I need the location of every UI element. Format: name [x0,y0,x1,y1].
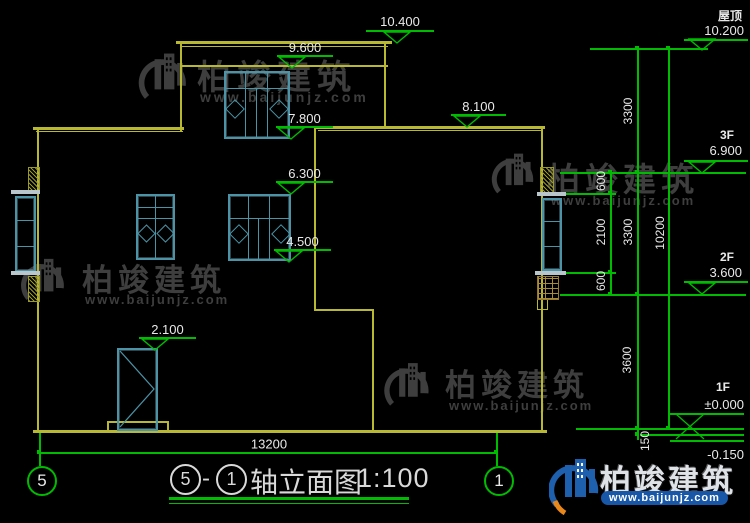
casement-symbol [137,224,155,242]
title-underline-thin [169,503,409,504]
dim-tick [608,170,612,174]
grid-bubble-left: 5 [27,466,57,496]
elevation-drawing-canvas: 柏竣建筑 www.baijunjz.com 柏竣建筑 www.baijunjz.… [0,0,750,523]
window-center-divider [256,89,257,137]
watermark-logo-icon [488,147,540,205]
elevation-label: 4.500 [274,234,331,249]
dim-tick [608,292,612,296]
title-axis-number: 1 [226,469,236,490]
dim-tick [635,426,639,430]
title-axis-circle-to: 1 [216,464,247,495]
dim-line-total-width [40,452,497,454]
window-mullion [267,73,268,137]
floor-name: 屋顶 [684,7,742,24]
watermark-logo-icon [138,46,190,112]
penthouse-wall-left [180,43,182,131]
elevation-label: 7.800 [276,111,333,126]
bay-window-bracket [540,167,554,194]
entry-door [117,348,158,431]
dim-text-total-height: 10200 [653,216,667,249]
watermark-site-text: www.baijunjz.com [551,193,695,208]
floor-name: 2F [684,250,734,264]
window-mullion [248,196,249,259]
window-mullion [155,196,156,258]
roof-coping-right-underline [318,130,543,131]
window-divider [544,246,560,247]
dim-line-middle [637,48,639,440]
elevation-label: 10.400 [366,14,434,29]
elevation-triangle-icon [275,250,303,263]
dim-tick [635,46,639,50]
elevation-label: 2.100 [139,322,196,337]
title-dash: - [202,465,210,493]
watermark-logo-icon [380,356,436,418]
casement-symbol [156,224,174,242]
title-axis-number: 5 [180,469,190,490]
grid-axis-number: 1 [494,471,503,491]
dim-tick [37,450,41,454]
drawing-title: 轴立面图 [250,461,362,501]
dim-text: 150 [638,431,652,451]
bay-window-right [542,198,562,271]
window-transom [230,218,289,219]
bay-window-sill [535,271,566,275]
penthouse-wall-right [384,43,386,129]
level-line-1f [576,428,744,430]
brand-logo-icon [549,451,601,521]
minus-level-bar [670,440,744,442]
dim-text: 2100 [594,219,608,246]
floor-elevation: ±0.000 [684,397,744,412]
elevation-triangle-icon [278,56,306,69]
elevation-label: 9.600 [277,40,333,55]
grid-bubble-right: 1 [484,466,514,496]
brick-pier [537,276,559,300]
wall-step-vertical-lower [372,311,374,433]
door-swing-symbol [119,350,156,429]
dim-tick [608,191,612,195]
casement-symbol [229,224,249,244]
roof-coping-left [33,127,184,130]
window-divider [544,221,560,222]
drawing-scale: 1:100 [357,463,430,494]
right-wall-bracket-box [537,299,548,310]
window-transom [226,88,288,89]
wall-step-horizontal [314,309,374,311]
dim-text: 600 [594,271,608,291]
dim-line-outer [668,48,670,428]
elevation-triangle-icon [383,31,411,44]
floor-name: 3F [684,128,734,142]
elevation-triangle-icon [688,38,716,51]
elevation-triangle-icon [688,161,716,174]
bay-window-left [15,196,36,272]
dim-text-total-width: 13200 [251,437,287,452]
zero-level-cross-icon [672,413,708,440]
dim-text: 3300 [621,219,635,246]
elevation-triangle-icon [277,127,305,140]
window-divider [17,220,34,221]
roof-coping-right [314,126,545,129]
roof-coping-left-underline [36,131,183,132]
dim-tick [635,292,639,296]
watermark-site-text: www.baijunjz.com [85,292,229,307]
floor-elevation: 10.200 [684,23,744,38]
bay-window-bracket [28,276,40,302]
casement-symbol [225,99,245,119]
elevation-triangle-icon [141,338,169,351]
level-line-3f [560,172,746,174]
wall-step-vertical-upper [314,129,316,311]
watermark-site-text: www.baijunjz.com [449,398,593,413]
window-mullion [245,73,246,137]
elevation-label: 6.300 [276,166,333,181]
window-3f-left [136,194,175,260]
elevation-triangle-icon [277,182,305,195]
window-mullion [269,196,270,259]
brand-site-banner: www.baijunjz.com [601,491,728,505]
elevation-triangle-icon [688,282,716,295]
bay-window-sill [11,190,40,194]
title-axis-circle-from: 5 [170,464,201,495]
dim-tick [666,46,670,50]
window-divider [17,246,34,247]
level-line-2f [560,294,746,296]
dim-tick [666,426,670,430]
dim-text: 3600 [620,347,634,374]
grid-axis-number: 5 [37,471,46,491]
window-center-divider [258,219,259,259]
dim-tick [635,170,639,174]
bay-window-sill [537,192,566,196]
elevation-label: 8.100 [451,99,506,114]
floor-elevation: 3.600 [684,265,742,280]
bay-window-sill [11,271,40,275]
dim-tick [494,450,498,454]
elevation-triangle-icon [453,115,481,128]
dim-text: 600 [594,171,608,191]
dim-text: 3300 [621,98,635,125]
floor-elevation: 6.900 [684,143,742,158]
floor-name: 1F [684,380,730,394]
dim-tick [608,270,612,274]
